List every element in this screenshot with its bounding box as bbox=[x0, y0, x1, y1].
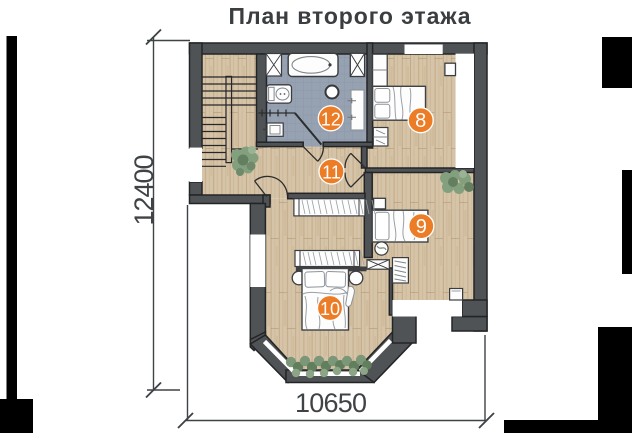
svg-text:12: 12 bbox=[321, 109, 341, 129]
svg-text:10: 10 bbox=[320, 299, 340, 319]
svg-text:11: 11 bbox=[322, 163, 341, 183]
svg-text:План второго этажа: План второго этажа bbox=[229, 3, 472, 29]
svg-text:8: 8 bbox=[415, 110, 426, 132]
svg-text:10650: 10650 bbox=[295, 388, 367, 418]
svg-text:12400: 12400 bbox=[129, 155, 159, 226]
svg-text:9: 9 bbox=[416, 216, 427, 238]
